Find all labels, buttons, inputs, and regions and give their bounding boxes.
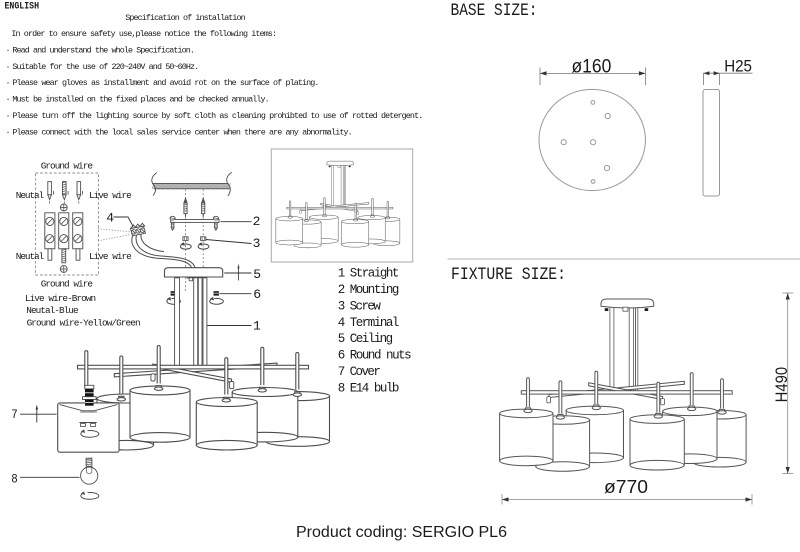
svg-text:1 Straight: 1 Straight: [338, 267, 400, 281]
svg-text:ø770: ø770: [604, 476, 648, 497]
svg-text:·: ·: [6, 78, 11, 88]
svg-text:Please connect with the local: Please connect with the local sales serv…: [12, 127, 352, 137]
svg-text:Must be installed on the fixed: Must be installed on the fixed places an…: [12, 95, 269, 105]
svg-text:·: ·: [6, 127, 11, 137]
svg-text:·: ·: [6, 111, 11, 121]
svg-text:6: 6: [253, 287, 261, 302]
svg-text:3 Screw: 3 Screw: [338, 299, 382, 313]
svg-text:Ground wire: Ground wire: [41, 161, 94, 172]
svg-text:Specification of installation: Specification of installation: [125, 13, 245, 23]
svg-text:4: 4: [106, 210, 114, 225]
svg-text:7 Cover: 7 Cover: [338, 365, 381, 379]
svg-text:ø160: ø160: [572, 56, 612, 78]
svg-text:Suitable for the use of 220~24: Suitable for the use of 220~240V and 50~…: [12, 62, 199, 72]
svg-text:Product coding: SERGIO PL6: Product coding: SERGIO PL6: [296, 524, 507, 541]
svg-text:7: 7: [11, 407, 18, 422]
svg-text:6 Round nuts: 6 Round nuts: [338, 349, 412, 363]
svg-text:Neutal: Neutal: [16, 190, 45, 201]
svg-text:Please wear gloves as installm: Please wear gloves as installment and av…: [12, 78, 319, 88]
svg-text:Please turn off the lighting s: Please turn off the lighting source by s…: [12, 111, 423, 121]
svg-text:5: 5: [253, 267, 261, 282]
svg-text:Live wire-Brown: Live wire-Brown: [25, 293, 96, 304]
svg-text:1: 1: [253, 319, 261, 334]
svg-text:BASE SIZE:: BASE SIZE:: [451, 1, 538, 21]
svg-text:In order to ensure safety use,: In order to ensure safety use,please not…: [11, 29, 277, 39]
svg-text:2: 2: [253, 214, 261, 229]
svg-text:5 Ceiling: 5 Ceiling: [338, 332, 394, 346]
svg-text:·: ·: [6, 62, 11, 72]
svg-text:8 E14 bulb: 8 E14 bulb: [338, 382, 400, 396]
svg-text:H25: H25: [724, 57, 752, 76]
svg-text:Neutal-Blue: Neutal-Blue: [26, 305, 79, 316]
svg-text:Ground wire-Yellow/Green: Ground wire-Yellow/Green: [27, 317, 141, 328]
svg-text:4 Terminal: 4 Terminal: [338, 316, 400, 330]
svg-text:ENGLISH: ENGLISH: [5, 2, 40, 13]
svg-text:3: 3: [253, 236, 261, 251]
svg-text:·: ·: [6, 95, 11, 105]
svg-text:Neutal: Neutal: [16, 251, 45, 262]
svg-text:Ground wire: Ground wire: [41, 278, 94, 289]
svg-text:·: ·: [6, 46, 11, 56]
svg-text:FIXTURE SIZE:: FIXTURE SIZE:: [451, 265, 566, 285]
svg-text:2 Mounting: 2 Mounting: [338, 283, 400, 297]
svg-text:Live wire: Live wire: [89, 190, 132, 201]
svg-text:Live wire: Live wire: [89, 251, 132, 262]
svg-text:8: 8: [11, 471, 18, 486]
svg-text:Read and understand the whole: Read and understand the whole Specificat…: [12, 46, 195, 56]
svg-text:H490: H490: [773, 367, 791, 403]
